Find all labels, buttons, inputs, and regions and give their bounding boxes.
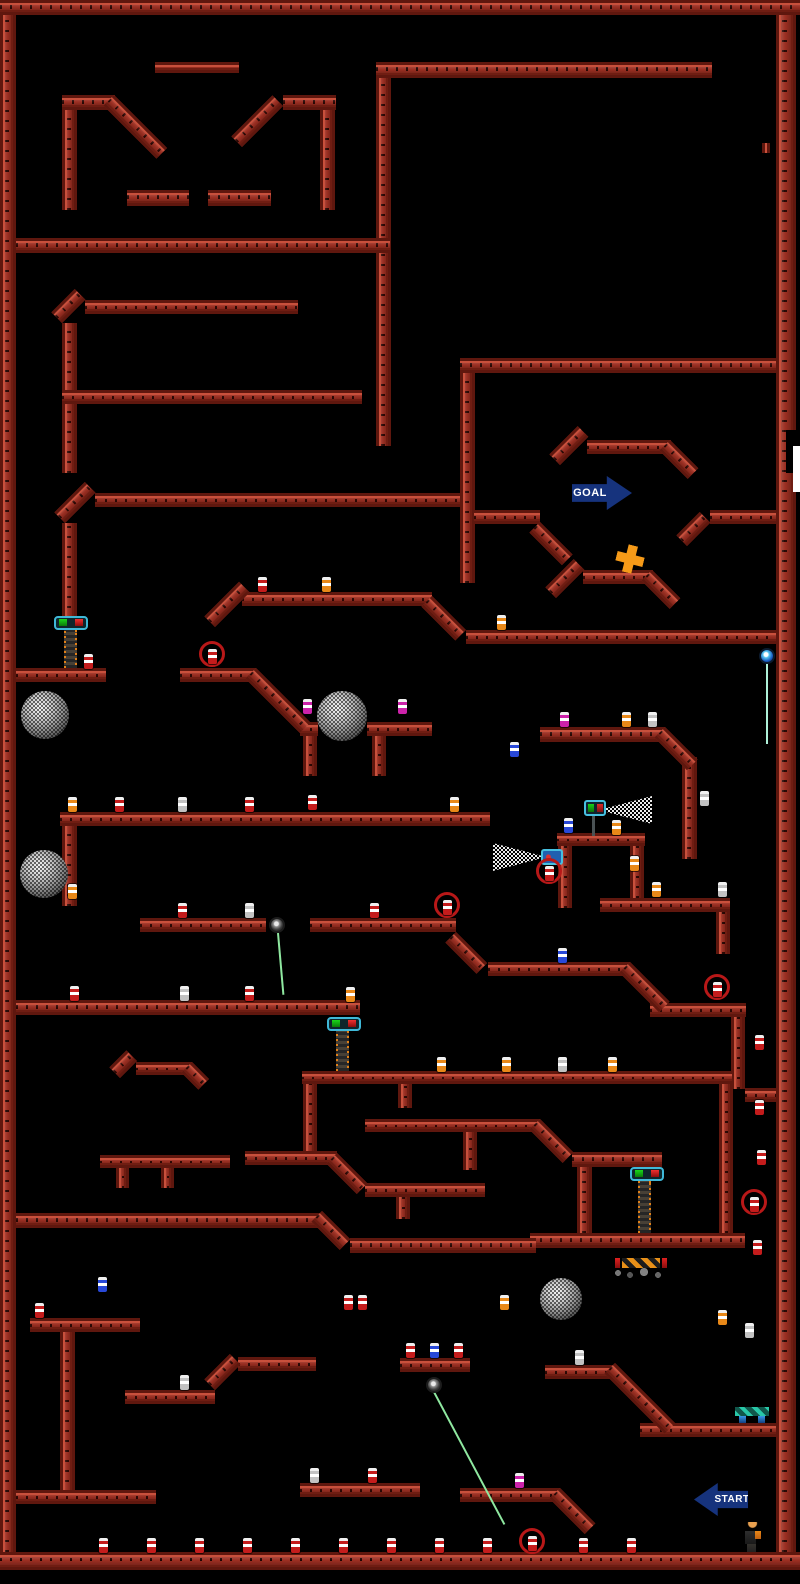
item-bottle-orange [346,987,355,1002]
searchlight-turret [584,800,606,816]
girder-beam [587,440,671,454]
item-bottle-white [558,1057,567,1072]
girder-beam [376,62,712,78]
item-bottle-red [358,1295,367,1310]
girder-beam [600,898,730,912]
girder-slope [529,522,572,565]
girder-slope [445,932,487,974]
girder-beam [762,143,770,153]
girder-beam [95,493,460,507]
item-bottle-red [627,1538,636,1553]
item-bottle-orange [622,712,631,727]
girder-beam [350,1238,536,1253]
eye-sensor [426,1377,442,1393]
girder-beam [0,1552,800,1570]
item-bottle-orange [450,797,459,812]
girder-beam [180,668,256,682]
girder-slope [641,570,680,609]
item-bottle-red [755,1035,764,1050]
girder-beam [400,1358,470,1372]
girder-slope [204,1354,240,1390]
item-bottle-blue [558,948,567,963]
girder-beam [283,95,336,110]
girder-beam [731,1017,745,1089]
item-bottle-orange [502,1057,511,1072]
sign-start: START [694,1483,748,1516]
item-bottle-red [579,1538,588,1553]
girder-slope [54,482,95,523]
bench-platform [735,1407,769,1423]
item-bottle-red [528,1536,537,1551]
item-bottle-magenta [398,699,407,714]
girder-beam [396,1197,410,1219]
girder-beam [719,1084,733,1233]
girder-beam [208,190,271,206]
girder-slope [549,1488,595,1534]
item-bottle-red [208,649,217,664]
item-bottle-blue [98,1277,107,1292]
item-bottle-orange [608,1057,617,1072]
girder-beam [155,62,239,73]
item-bottle-white [648,712,657,727]
item-bottle-red [178,903,187,918]
light-cone [604,796,652,824]
girder-beam [300,1483,420,1497]
item-bottle-red [84,654,93,669]
girder-beam [376,78,391,446]
item-bottle-white [700,791,709,806]
item-bottle-red [368,1468,377,1483]
girder-beam [365,1119,540,1132]
girder-beam [116,1168,129,1188]
girder-slope [231,95,283,147]
girder-beam [460,1488,560,1502]
boulder [21,691,69,739]
item-bottle-red [483,1538,492,1553]
boulder [20,850,68,898]
sign-label: GOAL [573,487,607,499]
girder-beam [0,15,16,1552]
girder-beam [16,1490,156,1504]
item-bottle-red [115,797,124,812]
girder-beam [303,1084,317,1155]
girder-beam [60,812,490,826]
turret-pole [592,816,595,836]
girder-beam [85,300,298,314]
item-bottle-blue [430,1343,439,1358]
girder-slope [619,962,669,1012]
level-map[interactable]: GOALSTART [0,0,800,1584]
girder-slope [549,426,588,465]
girder-beam [30,1318,140,1332]
hanging-chain [64,630,77,668]
item-bottle-red [195,1538,204,1553]
girder-beam [245,1151,337,1165]
hanging-chain [336,1031,349,1071]
sign-goal: GOAL [572,476,632,510]
item-bottle-orange [630,856,639,871]
girder-slope [659,440,698,479]
eye-sensor [269,917,285,933]
item-bottle-red [753,1240,762,1255]
girder-beam [16,238,390,253]
girder-slope [421,596,466,641]
boulder [540,1278,582,1320]
item-bottle-red [344,1295,353,1310]
girder-beam [572,1152,662,1167]
item-bottle-orange [500,1295,509,1310]
girder-slope [545,559,584,598]
girder-slope [529,1119,573,1163]
chain-motor [54,616,88,630]
girder-beam [682,757,697,859]
girder-beam [365,1183,485,1197]
item-bottle-white [245,903,254,918]
girder-beam [460,373,475,583]
eye-sensor [759,648,775,664]
girder-beam [310,918,456,932]
girder-beam [557,833,645,846]
girder-beam [530,1233,745,1248]
player-character [744,1522,761,1552]
item-bottle-orange [437,1057,446,1072]
girder-slope [654,727,697,770]
item-bottle-orange [612,820,621,835]
rubble-pile [610,1267,672,1279]
item-bottle-white [718,882,727,897]
laser-beam [766,664,768,744]
item-bottle-red [35,1303,44,1318]
item-bottle-red [258,577,267,592]
girder-slope [326,1153,367,1194]
girder-beam [460,358,776,373]
item-bottle-red [99,1538,108,1553]
girder-beam [62,110,77,210]
item-bottle-red [387,1538,396,1553]
girder-beam [540,727,665,742]
item-bottle-red [406,1343,415,1358]
girder-beam [303,736,317,776]
girder-slope [51,289,85,323]
item-bottle-magenta [560,712,569,727]
item-bottle-orange [322,577,331,592]
girder-beam [372,736,386,776]
item-bottle-red [245,986,254,1001]
girder-beam [125,1390,215,1404]
item-bottle-red [443,900,452,915]
item-bottle-red [245,797,254,812]
item-bottle-white [575,1350,584,1365]
item-bottle-magenta [303,699,312,714]
item-bottle-red [291,1538,300,1553]
girder-beam [161,1168,174,1188]
item-bottle-white [310,1468,319,1483]
girder-beam [100,1155,230,1168]
item-bottle-orange [718,1310,727,1325]
item-bottle-red [147,1538,156,1553]
item-bottle-red [243,1538,252,1553]
girder-beam [0,0,800,15]
sign-label: START [714,1494,749,1505]
girder-beam [488,962,630,976]
item-bottle-red [757,1150,766,1165]
item-bottle-red [750,1197,759,1212]
girder-beam [127,190,189,206]
item-bottle-red [755,1100,764,1115]
item-bottle-red [339,1538,348,1553]
girder-beam [398,1084,412,1108]
item-bottle-blue [510,742,519,757]
item-bottle-magenta [515,1473,524,1488]
girder-beam [238,1357,316,1371]
girder-beam [62,523,77,618]
laser-beam [277,933,284,995]
light-cone [493,843,541,871]
item-bottle-red [370,903,379,918]
girder-beam [367,722,432,736]
item-bottle-red [308,795,317,810]
item-bottle-orange [497,615,506,630]
chain-motor [630,1167,664,1181]
item-bottle-red [545,866,554,881]
item-bottle-orange [68,797,77,812]
item-bottle-orange [68,884,77,899]
chain-motor [327,1017,361,1031]
item-bottle-white [180,986,189,1001]
boulder [317,691,367,741]
girder-beam [320,110,335,210]
wall-gap-highlight [793,446,800,492]
girder-beam [16,668,106,682]
hazard-barrier [615,1258,667,1268]
item-bottle-white [745,1323,754,1338]
item-bottle-white [178,797,187,812]
item-bottle-red [713,982,722,997]
girder-slope [103,95,167,159]
girder-slope [311,1211,350,1250]
laser-beam [433,1392,505,1525]
girder-beam [474,510,540,524]
item-bottle-orange [652,882,661,897]
item-bottle-red [454,1343,463,1358]
girder-slope [676,512,710,546]
girder-beam [140,918,266,932]
girder-beam [776,15,796,1552]
item-bottle-red [435,1538,444,1553]
girder-slope [245,668,310,733]
girder-beam [710,510,776,524]
girder-beam [62,390,362,404]
girder-beam [716,912,730,954]
girder-beam [302,1071,732,1084]
girder-slope [109,1050,137,1078]
item-bottle-white [180,1375,189,1390]
girder-beam [16,1213,324,1228]
girder-beam [466,630,776,644]
item-bottle-red [70,986,79,1001]
girder-beam [463,1132,477,1170]
girder-beam [60,1332,75,1492]
girder-beam [16,1000,360,1015]
girder-beam [577,1167,592,1233]
girder-beam [242,592,432,606]
hanging-chain [638,1181,651,1233]
item-bottle-blue [564,818,573,833]
